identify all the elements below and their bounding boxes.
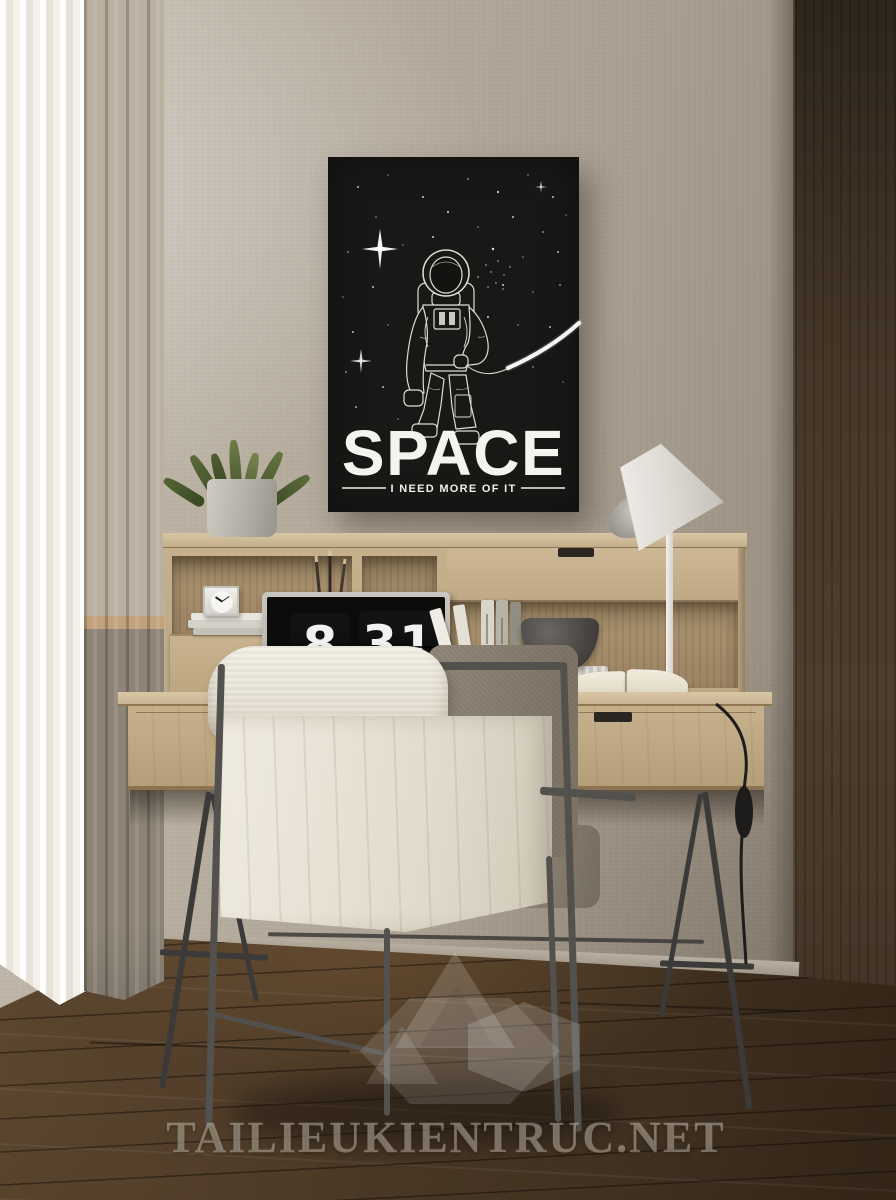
throw-blanket-panel <box>220 716 552 932</box>
interior-photo: SPACE I NEED MORE OF IT <box>0 0 896 1200</box>
lamp-cable <box>0 0 896 1200</box>
chair-shadow <box>230 1078 620 1148</box>
cable-switch <box>735 786 753 838</box>
chair-leg-front-left <box>384 928 390 1116</box>
